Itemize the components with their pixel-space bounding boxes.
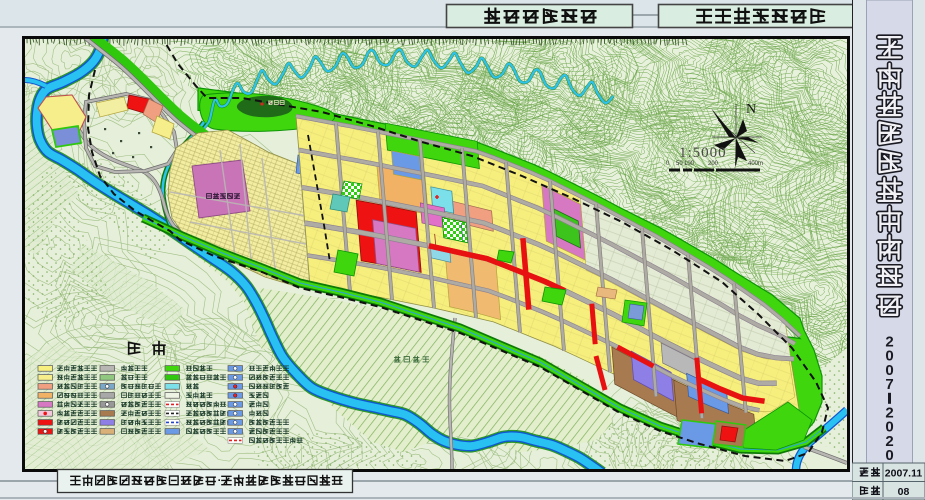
svg-text:50: 50	[676, 161, 683, 167]
svg-text:100: 100	[684, 161, 695, 167]
svg-text:0: 0	[885, 447, 893, 464]
svg-text:2007.11: 2007.11	[885, 468, 923, 480]
svg-text:N: N	[746, 102, 756, 117]
svg-text:·: ·	[218, 475, 222, 487]
svg-text:200: 200	[708, 161, 719, 167]
svg-text:1:5000: 1:5000	[679, 145, 727, 161]
svg-text:7: 7	[885, 376, 893, 393]
svg-text:400m: 400m	[748, 161, 763, 167]
